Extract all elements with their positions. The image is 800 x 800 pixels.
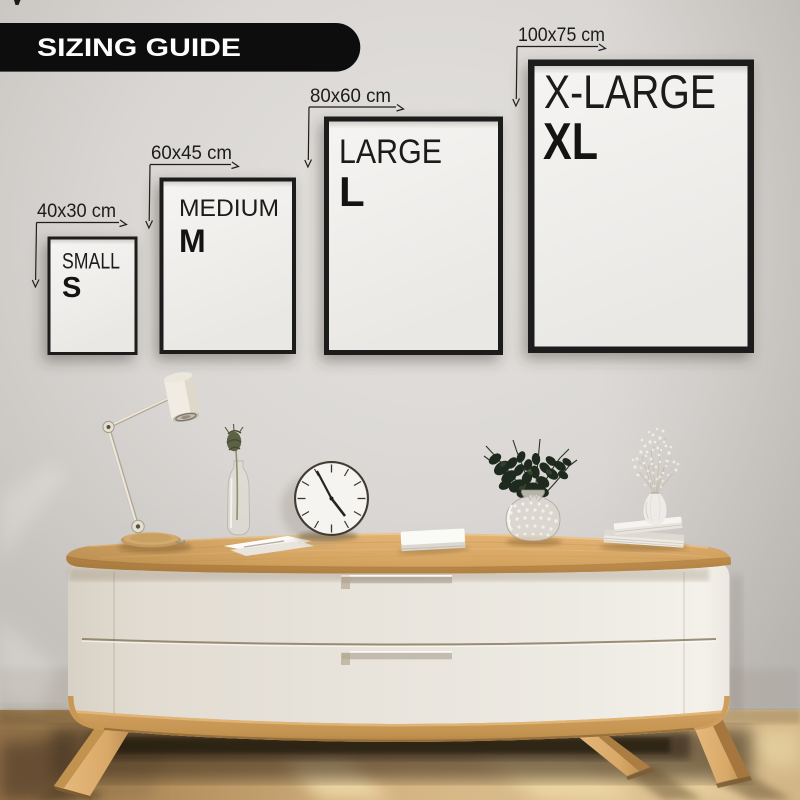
svg-text:LARGE: LARGE <box>339 133 442 171</box>
svg-text:SMALL: SMALL <box>62 249 120 274</box>
svg-text:X-LARGE: X-LARGE <box>544 65 716 118</box>
svg-text:40x30 cm: 40x30 cm <box>37 201 116 222</box>
svg-text:M: M <box>179 223 206 259</box>
svg-text:S: S <box>62 272 81 304</box>
svg-text:MEDIUM: MEDIUM <box>179 195 279 222</box>
svg-text:80x60 cm: 80x60 cm <box>310 86 391 107</box>
svg-text:100x75 cm: 100x75 cm <box>518 25 605 46</box>
svg-text:60x45 cm: 60x45 cm <box>151 143 232 164</box>
svg-text:XL: XL <box>543 113 598 171</box>
svg-text:SIZING GUIDE: SIZING GUIDE <box>37 34 241 62</box>
svg-text:L: L <box>339 168 365 215</box>
